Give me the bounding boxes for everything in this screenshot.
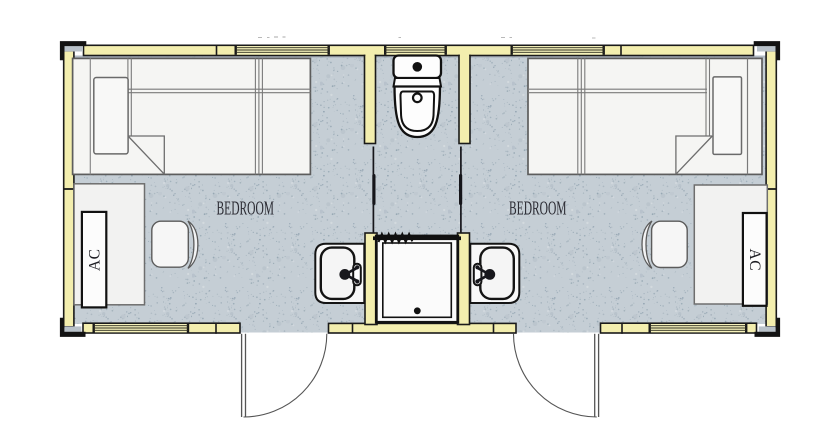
svg-text:AC: AC: [746, 249, 763, 271]
svg-text:BEDROOM: BEDROOM: [509, 198, 567, 220]
svg-text:BEDROOM: BEDROOM: [217, 198, 275, 220]
svg-text:AC: AC: [87, 249, 104, 271]
